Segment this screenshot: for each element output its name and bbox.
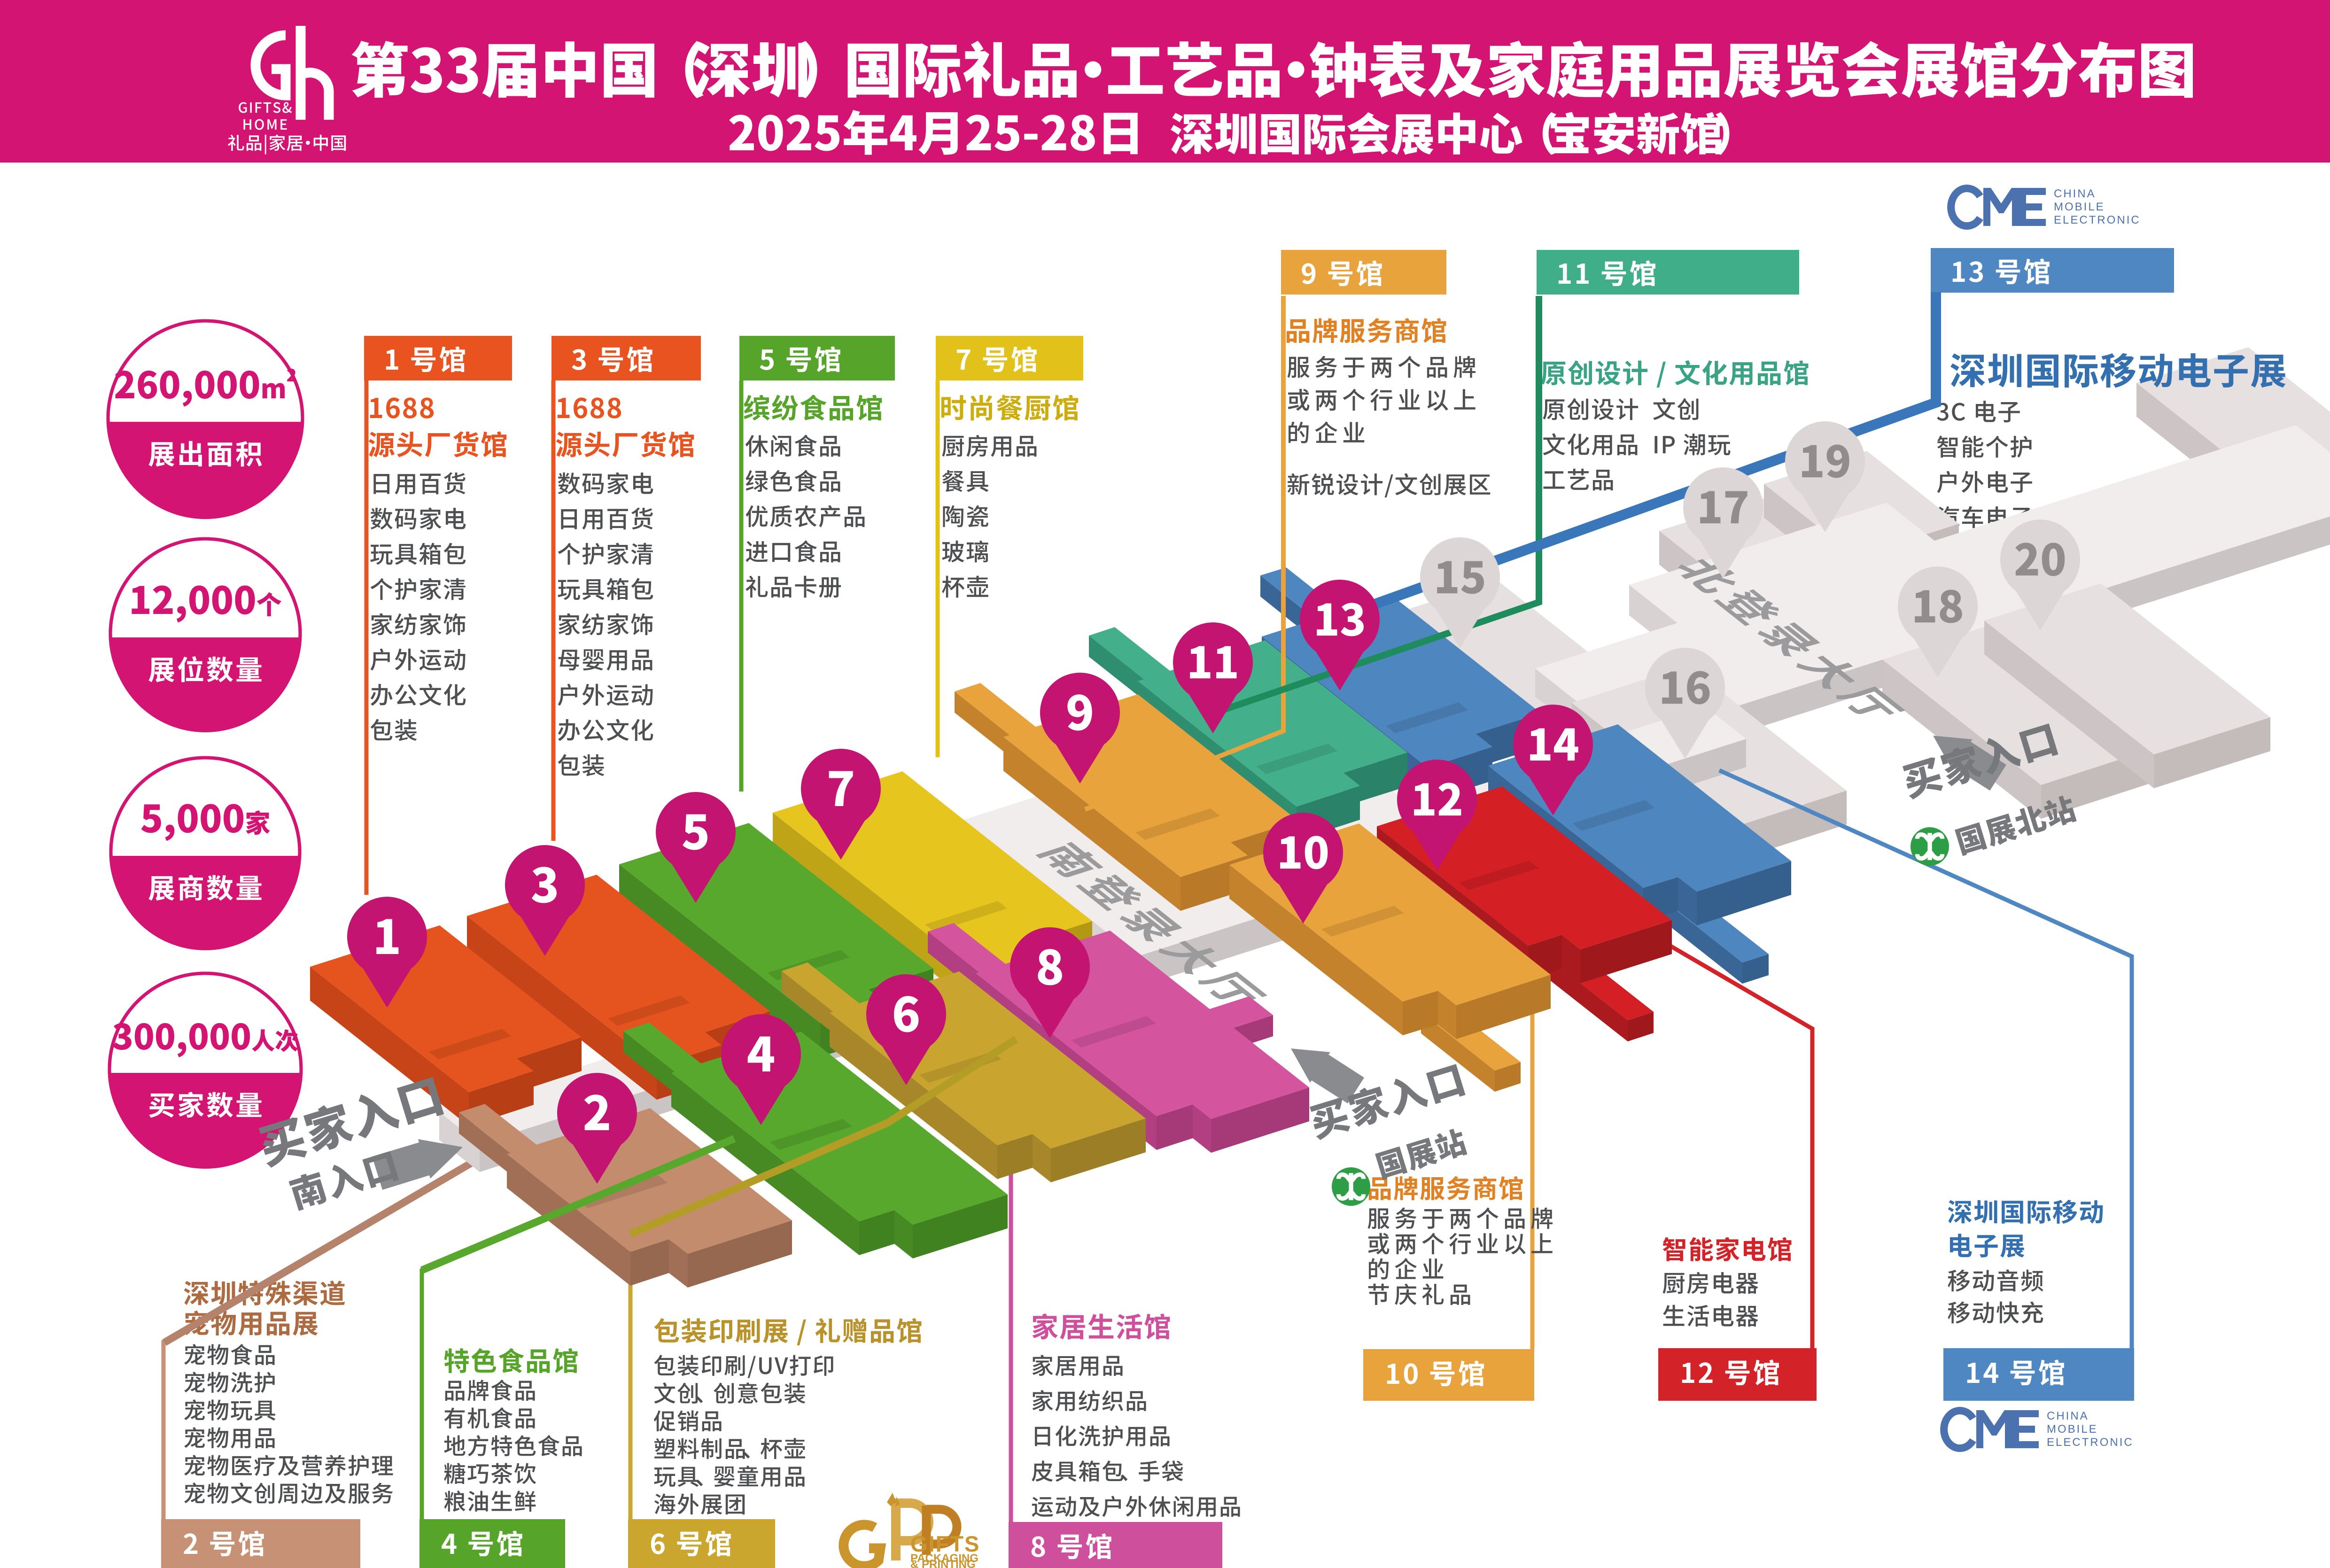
svg-text:CHINA: CHINA — [2054, 187, 2096, 200]
svg-text:& PRINTING: & PRINTING — [910, 1558, 976, 1568]
svg-text:MOBILE: MOBILE — [2047, 1423, 2098, 1436]
svg-text:ELECTRONIC: ELECTRONIC — [2054, 214, 2141, 226]
svg-text:MOBILE: MOBILE — [2054, 201, 2105, 213]
svg-text:CHINA: CHINA — [2047, 1410, 2089, 1422]
svg-text:ELECTRONIC: ELECTRONIC — [2047, 1436, 2134, 1449]
